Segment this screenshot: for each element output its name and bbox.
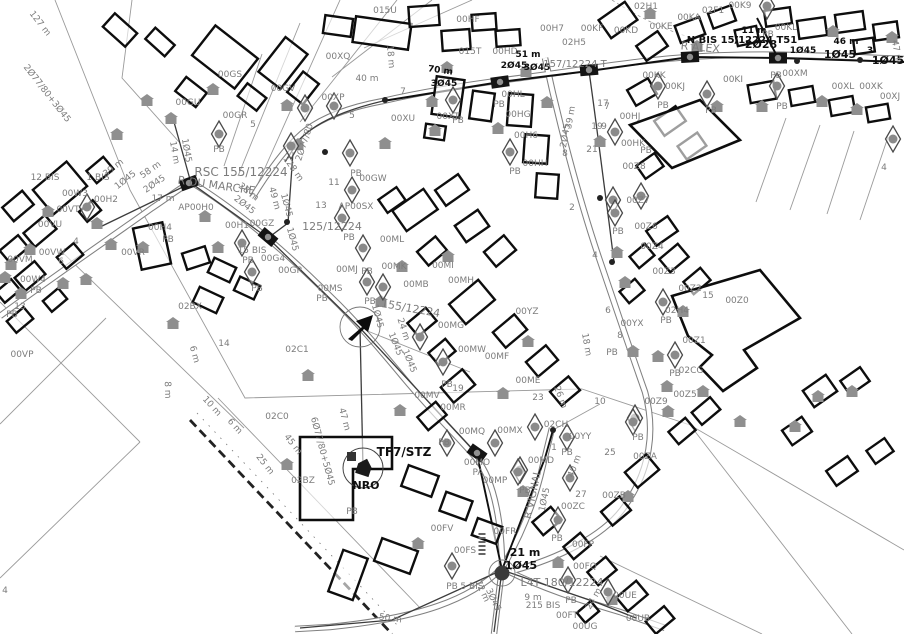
map-label: 00Z5 xyxy=(673,390,696,400)
map-label: 00MG xyxy=(438,321,464,331)
map-label: 00G4 xyxy=(261,254,285,264)
map-label: 00UB xyxy=(626,614,650,624)
map-label: 00MP xyxy=(483,476,508,486)
map-label: 40 m xyxy=(355,74,378,84)
map-label: PB xyxy=(441,380,453,390)
node-dot[interactable] xyxy=(322,149,328,155)
map-label: 00YY xyxy=(569,432,592,442)
map-label: 10 m xyxy=(200,395,223,419)
map-label: 127 m xyxy=(27,9,53,38)
map-label: 00W3 xyxy=(62,189,88,199)
map-label: 4 xyxy=(2,586,8,596)
map-label: 00YX xyxy=(620,319,643,329)
map-label: 02H4 xyxy=(665,306,689,316)
house-icon xyxy=(211,241,225,253)
map-label: 00Z4 xyxy=(640,242,664,252)
map-label: 6 xyxy=(605,306,611,316)
map-label: 02BX xyxy=(178,302,202,312)
house-icon xyxy=(280,99,294,111)
map-label: 02H1 xyxy=(634,2,658,12)
map-label: 00FV xyxy=(431,524,455,534)
map-canvas[interactable]: 127 m2Ø77/80+3Ø4500GS00GU00GR5PB00GV12 B… xyxy=(0,0,904,634)
map-label: 18 m xyxy=(579,332,593,356)
map-label: 17 m xyxy=(151,194,174,204)
map-label: 6 m xyxy=(225,417,244,437)
map-label: 4 xyxy=(592,251,598,261)
node-dot[interactable] xyxy=(794,58,800,64)
map-label: AP00SX xyxy=(339,202,374,212)
house-icon xyxy=(378,137,392,149)
map-label: 1Ø45 xyxy=(824,48,856,61)
map-label: PB xyxy=(657,101,669,111)
building xyxy=(449,280,495,324)
map-label: 7 xyxy=(400,87,406,97)
map-label: 00GZ xyxy=(250,219,275,229)
building xyxy=(103,13,137,46)
map-label: PB xyxy=(350,169,362,179)
house-icon xyxy=(496,387,510,399)
map-label: 00W4 xyxy=(20,275,46,285)
map-label: 70 m xyxy=(427,64,453,77)
house-icon xyxy=(110,128,124,140)
pole-icon[interactable] xyxy=(503,139,518,165)
building xyxy=(797,17,827,39)
map-label: 00MO xyxy=(464,458,490,468)
map-label: 10 xyxy=(594,397,606,407)
house-icon xyxy=(206,83,220,95)
map-label: 4 xyxy=(881,163,887,173)
building xyxy=(43,288,67,312)
building xyxy=(789,86,815,106)
building xyxy=(829,96,855,116)
map-label: 27 xyxy=(575,490,586,500)
building xyxy=(323,15,353,37)
map-label: PB xyxy=(612,227,624,237)
map-label: 00ZC xyxy=(561,502,585,512)
building xyxy=(145,28,174,57)
map-label: PB xyxy=(770,71,782,81)
map-label: 5 xyxy=(349,111,355,121)
building xyxy=(408,5,439,27)
map-label: 00MF xyxy=(485,352,509,362)
map-label: 2 xyxy=(569,203,575,213)
map-label: 00ZB xyxy=(602,491,626,501)
map-label: 00Z0 xyxy=(725,296,749,306)
map-label: 00XQ xyxy=(326,52,351,62)
house-icon xyxy=(411,537,425,549)
house-icon xyxy=(660,380,674,392)
map-label: 02CH xyxy=(544,420,569,430)
map-label: PB xyxy=(669,369,681,379)
map-label: 02C1 xyxy=(285,345,308,355)
map-label: 00MW xyxy=(458,345,486,355)
map-label: 00MB xyxy=(403,280,428,290)
building xyxy=(526,345,558,376)
map-label: 00Z2 xyxy=(678,284,701,294)
map-label: 4 xyxy=(73,237,79,247)
map-label: 1Ø45 xyxy=(400,348,419,375)
map-label: PB xyxy=(446,582,458,592)
house-icon xyxy=(140,94,154,106)
map-label: 2Ø28 xyxy=(745,38,777,51)
parcel-line xyxy=(756,118,786,202)
map-label: 12 BIS xyxy=(31,173,60,183)
map-label: 02BZ xyxy=(291,476,315,486)
map-label: 00VU xyxy=(38,220,62,230)
map-label: PB xyxy=(632,433,644,443)
map-label: 00MK xyxy=(381,262,407,272)
map-label: 00ZA xyxy=(633,452,658,462)
parcel-line xyxy=(790,125,820,210)
map-label: 00MH xyxy=(448,276,474,286)
map-label: 00GR xyxy=(223,111,248,121)
map-label: 00XJ xyxy=(880,92,900,102)
building xyxy=(469,91,495,122)
map-label: PB xyxy=(640,146,652,156)
map-label: 02H5 xyxy=(562,38,586,48)
map-label: 00KK xyxy=(642,71,666,81)
house-icon xyxy=(79,273,93,285)
map-label: 00ML xyxy=(380,235,404,245)
map-label: PB xyxy=(705,106,717,116)
map-label: 00MD xyxy=(528,456,554,466)
map-label: 1 xyxy=(551,443,557,453)
map-label: PB xyxy=(361,267,373,277)
map-label: PB xyxy=(346,507,358,517)
map-label: 00FT xyxy=(556,611,578,621)
building xyxy=(374,538,418,574)
map-label: 00UG xyxy=(572,622,597,632)
map-label: 8 xyxy=(562,149,568,159)
building xyxy=(182,246,210,270)
pole-icon[interactable] xyxy=(345,177,360,203)
map-label: 47 m xyxy=(336,407,352,432)
map-label: 125/12224 xyxy=(302,220,362,233)
map-label: PB xyxy=(561,448,573,458)
map-label: 00GU xyxy=(175,98,200,108)
house-icon xyxy=(696,385,710,397)
map-label: NRO xyxy=(352,479,379,492)
map-label: 00H4 xyxy=(148,223,172,233)
pole-icon[interactable] xyxy=(445,553,460,579)
map-label: 00MJ xyxy=(336,265,358,275)
map-label: 00GW xyxy=(359,174,386,184)
building xyxy=(484,235,516,266)
house-icon xyxy=(280,458,294,470)
map-label: 7 xyxy=(604,102,610,112)
map-label: PB xyxy=(438,438,450,448)
map-label: 00KD xyxy=(614,26,638,36)
building xyxy=(2,191,33,222)
map-label: PB xyxy=(343,233,355,243)
map-label: 8 m xyxy=(162,381,173,399)
node-dot[interactable] xyxy=(284,219,290,225)
map-label: 15 xyxy=(702,291,713,301)
parcel-line xyxy=(860,137,888,220)
map-label: PB xyxy=(251,284,263,294)
map-label: 00KF xyxy=(581,24,604,34)
building xyxy=(401,465,439,497)
map-label: 00H1 xyxy=(225,221,249,231)
map-label: 00GS xyxy=(218,70,242,80)
house-icon xyxy=(491,122,505,134)
building xyxy=(866,104,890,123)
map-label: 9 xyxy=(601,122,607,132)
map-label: 3 xyxy=(867,46,873,56)
house-icon xyxy=(651,350,665,362)
map-label: 00KE xyxy=(649,22,672,32)
map-label: PB xyxy=(660,316,672,326)
house-icon xyxy=(733,415,747,427)
map-label: 00YZ xyxy=(515,307,538,317)
map-label: 5 xyxy=(250,120,256,130)
pole-icon[interactable] xyxy=(343,140,358,166)
map-label: 00Z3 xyxy=(652,267,675,277)
map-label: 00ME xyxy=(516,376,541,386)
map-label: 155/12224 xyxy=(380,297,441,320)
map-label: 02CG xyxy=(679,366,704,376)
parcel-line xyxy=(0,442,140,578)
map-label: 3Ø45 xyxy=(431,78,457,89)
house-icon xyxy=(301,369,315,381)
map-label: 00Z9 xyxy=(644,397,668,407)
map-label: 00Z6 xyxy=(634,222,658,232)
map-label: 00MI xyxy=(432,261,454,271)
house-icon xyxy=(0,271,12,283)
cabinet-icon[interactable] xyxy=(769,53,787,64)
map-label: 015T xyxy=(459,47,482,57)
pole-icon[interactable] xyxy=(356,235,371,261)
building xyxy=(493,314,527,347)
house-icon xyxy=(166,317,180,329)
map-label: 00FQ xyxy=(573,562,597,572)
map-label: 14 xyxy=(218,339,230,349)
map-label: 00KA xyxy=(677,13,701,23)
map-label: 00XM xyxy=(782,69,807,79)
map-label: 1Ø45 xyxy=(284,226,301,252)
map-label: 46 m xyxy=(833,37,858,47)
map-label: 00KJ xyxy=(665,82,685,92)
node-dot[interactable] xyxy=(382,97,388,103)
map-label: 00XK xyxy=(859,82,884,92)
map-label: 00HH xyxy=(523,159,548,169)
building xyxy=(803,375,837,407)
map-label: 015U xyxy=(373,6,397,16)
house-icon xyxy=(56,277,70,289)
map-label: 00MR xyxy=(440,403,465,413)
pole-icon[interactable] xyxy=(668,342,683,368)
map-label: 00MS xyxy=(318,284,343,294)
map-label: 00HF xyxy=(456,15,479,25)
map-label: PB xyxy=(776,102,788,112)
map-label: 00Z8 xyxy=(622,162,646,172)
map-label: 00H2 xyxy=(94,195,118,205)
map-label: 00UE xyxy=(613,591,637,601)
map-label: 00MQ xyxy=(459,427,485,437)
map-label: 00VT xyxy=(56,205,80,215)
building xyxy=(495,29,520,47)
pole-icon[interactable] xyxy=(528,414,543,440)
map-label: 00FR xyxy=(494,527,517,537)
map-label: 00KL xyxy=(775,23,797,33)
building xyxy=(435,174,469,206)
map-label: 14 m xyxy=(167,140,181,164)
map-label: 25 m xyxy=(254,453,276,477)
map-label: L4T 180/12224 xyxy=(520,576,603,589)
map-label: 1Ø45 xyxy=(790,45,816,56)
map-label: 157/12224 T xyxy=(543,59,607,70)
house-icon xyxy=(164,112,178,124)
building xyxy=(439,492,472,520)
map-label: 00XU xyxy=(391,114,415,124)
map-label: 00Z7 xyxy=(626,196,649,206)
map-label: 00VP xyxy=(10,350,34,360)
parcel-line xyxy=(690,425,852,634)
map-label: 02C0 xyxy=(265,412,289,422)
node-dot[interactable] xyxy=(857,57,863,63)
map-label: PB xyxy=(509,167,521,177)
building xyxy=(692,397,721,425)
map-label: 21 m xyxy=(510,546,541,559)
map-label: 6 xyxy=(58,257,64,267)
map-label: 00H6 xyxy=(514,131,538,141)
house-icon xyxy=(393,404,407,416)
map-label: 00MX xyxy=(497,426,522,436)
building xyxy=(455,210,489,242)
map-label: 00H7 xyxy=(540,24,564,34)
map-label: PB xyxy=(30,286,42,296)
map-label: 02F1 xyxy=(702,6,724,16)
building xyxy=(328,550,367,600)
map-label: 00HD xyxy=(492,47,517,57)
map-label: 00VR xyxy=(121,248,145,258)
map-label: 00HL xyxy=(501,90,524,100)
map-label: 51 m xyxy=(515,50,540,60)
map-label: 11 xyxy=(328,178,339,188)
house-icon xyxy=(521,335,535,347)
map-label: PB xyxy=(606,348,618,358)
map-label: PB xyxy=(493,100,505,110)
map-label: 00HG xyxy=(505,110,530,120)
pole-icon[interactable] xyxy=(886,126,901,152)
map-label: 6 m xyxy=(187,345,201,364)
map-label: 00FP xyxy=(572,540,595,550)
building xyxy=(826,456,858,486)
map-label: PB xyxy=(316,294,328,304)
map-label: 00VM xyxy=(7,255,32,265)
map-label: 13 xyxy=(315,201,326,211)
building xyxy=(208,258,237,283)
map-label: 00MV xyxy=(414,391,440,401)
map-label: 00KI xyxy=(723,75,743,85)
cabinet-icon[interactable] xyxy=(490,75,509,88)
map-label: 00FS xyxy=(454,546,476,556)
map-label: PB xyxy=(551,534,563,544)
map-label: 215 BIS xyxy=(526,601,561,611)
map-label: 00GV xyxy=(271,84,296,94)
map-label: 19 xyxy=(452,384,464,394)
map-label: 00K9 xyxy=(728,1,751,11)
map-label: PB xyxy=(452,116,464,126)
pole-icon[interactable] xyxy=(212,121,227,147)
map-label: PB xyxy=(162,235,174,245)
map-label: PB xyxy=(213,145,225,155)
building xyxy=(866,438,893,464)
map-label: AP00H0 xyxy=(178,203,214,213)
building xyxy=(238,83,267,110)
building xyxy=(535,173,559,198)
map-label: 50 m xyxy=(378,612,402,625)
map-label: 00XP xyxy=(321,93,345,103)
map-label: 23 xyxy=(532,393,543,403)
map-label: 25 xyxy=(604,448,615,458)
map-label: 18 m xyxy=(384,45,396,69)
map-label: 2Ø77/80+3Ø45 xyxy=(21,62,73,124)
map-label: TF7/STZ xyxy=(377,445,432,459)
house-icon xyxy=(618,276,632,288)
map-label: 00GP xyxy=(278,266,302,276)
map-label: 00HJ xyxy=(620,112,641,122)
house-icon xyxy=(815,95,829,107)
map-label: PB xyxy=(565,596,577,606)
map-label: PB xyxy=(6,310,18,320)
network-map[interactable]: 127 m2Ø77/80+3Ø4500GS00GU00GR5PB00GV12 B… xyxy=(0,0,904,634)
map-label: PB xyxy=(242,256,254,266)
map-label: 21 xyxy=(586,145,597,155)
map-label: 00XL xyxy=(832,82,855,92)
node-dot[interactable] xyxy=(609,259,615,265)
map-label: 8 xyxy=(617,331,623,341)
building xyxy=(668,418,695,444)
node-dot[interactable] xyxy=(597,195,603,201)
map-label: 00Z1 xyxy=(682,336,705,346)
map-label: 1Ø45 xyxy=(505,559,537,572)
parcel-line xyxy=(827,131,854,214)
